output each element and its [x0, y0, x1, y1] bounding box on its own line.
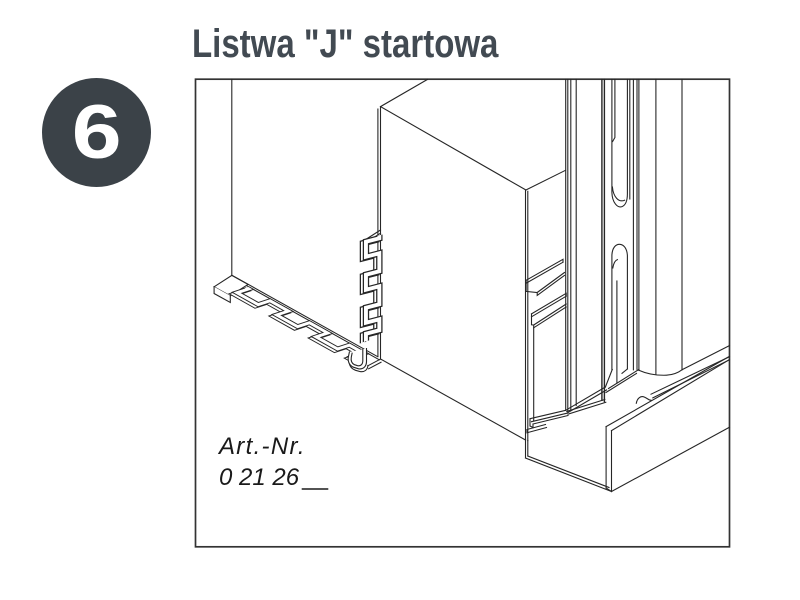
- svg-text:Art.-Nr.: Art.-Nr.: [217, 433, 306, 460]
- svg-text:0 21 26: 0 21 26: [219, 464, 300, 491]
